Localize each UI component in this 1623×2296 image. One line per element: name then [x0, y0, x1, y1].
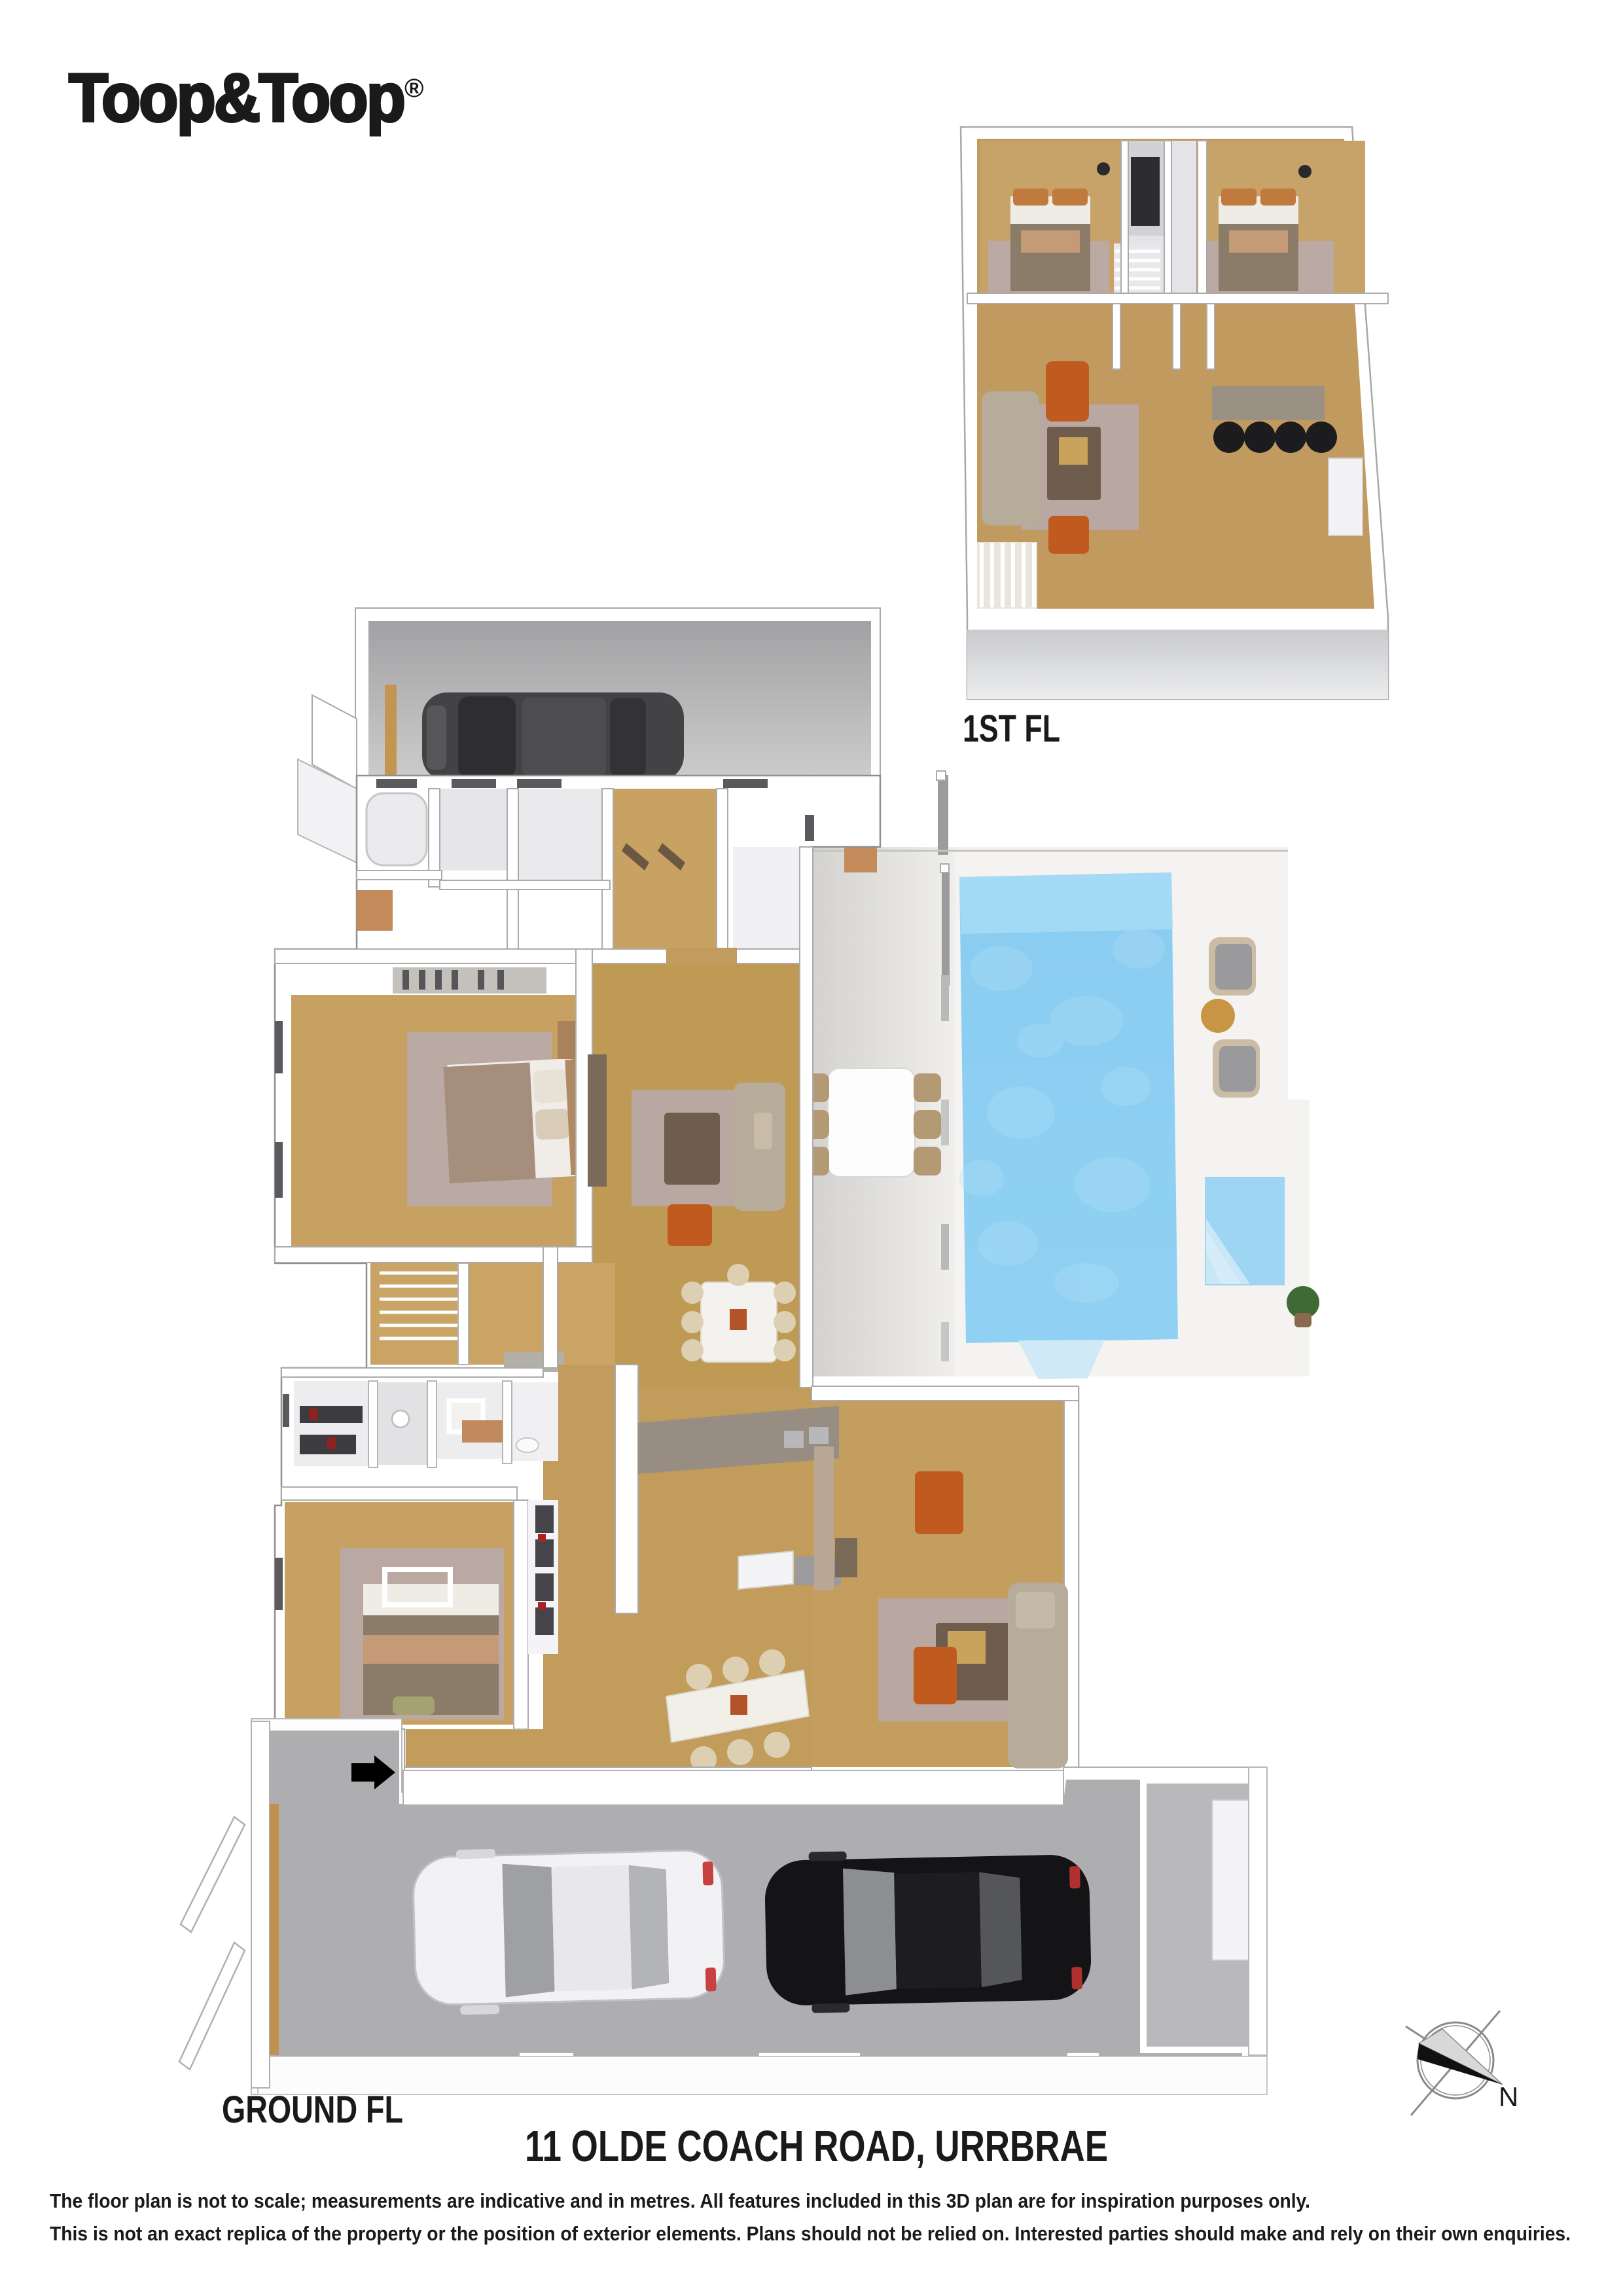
svg-text:®: ®: [404, 74, 423, 103]
svg-text:11 OLDE COACH ROAD, URRBRAE: 11 OLDE COACH ROAD, URRBRAE: [525, 2122, 1108, 2171]
svg-text:The floor plan is not to scale: The floor plan is not to scale; measurem…: [50, 2189, 1310, 2212]
svg-text:GROUND FL: GROUND FL: [222, 2089, 403, 2131]
svg-text:N: N: [1499, 2081, 1518, 2112]
svg-text:Toop&Toop: Toop&Toop: [69, 60, 404, 136]
svg-text:1ST FL: 1ST FL: [963, 708, 1060, 750]
svg-text:This is not an exact replica o: This is not an exact replica of the prop…: [50, 2222, 1571, 2245]
